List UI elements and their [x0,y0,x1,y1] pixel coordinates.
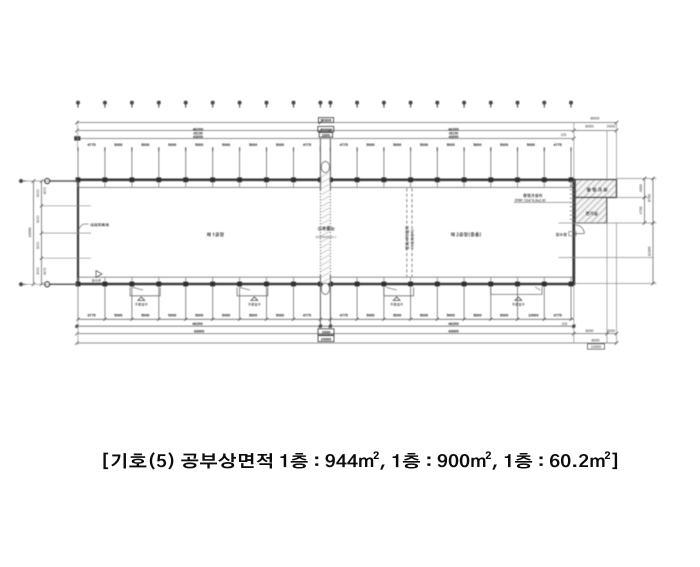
svg-text:5000: 5000 [168,313,176,317]
svg-text:5000: 5000 [195,313,203,317]
svg-text:4700: 4700 [639,206,643,214]
svg-text:2000: 2000 [607,329,615,333]
svg-text:5000: 5000 [366,313,374,317]
svg-text:5000: 5000 [500,313,508,317]
svg-text:8000: 8000 [591,116,601,121]
svg-text:3000: 3000 [36,215,40,223]
svg-text:5000: 5000 [420,313,428,317]
svg-text:5000: 5000 [447,143,455,147]
svg-text:4775: 4775 [554,313,562,317]
svg-text:11300: 11300 [647,247,651,257]
svg-text:3000: 3000 [36,267,40,275]
svg-text:8700: 8700 [647,194,651,202]
svg-text:10000: 10000 [321,337,332,341]
svg-text:43000: 43000 [194,329,205,333]
svg-text:5000: 5000 [141,143,149,147]
svg-text:5000: 5000 [393,313,401,317]
svg-text:5000: 5000 [222,143,230,147]
svg-text:4775: 4775 [303,143,311,147]
svg-text:5000: 5000 [393,143,401,147]
svg-text:5000: 5000 [366,143,374,147]
svg-text:5000: 5000 [473,313,481,317]
svg-text:3000: 3000 [36,242,40,250]
svg-text:5000: 5000 [527,143,535,147]
svg-text:6000: 6000 [586,329,594,333]
svg-text:5000: 5000 [447,313,455,317]
svg-text:43000: 43000 [193,135,203,139]
svg-text:6000: 6000 [585,125,593,129]
svg-text:8000: 8000 [592,338,600,342]
svg-text:5000: 5000 [168,143,176,147]
svg-text:4675: 4675 [43,187,47,195]
svg-text:5000: 5000 [276,143,284,147]
svg-text:225: 225 [562,322,568,326]
svg-text:46200: 46200 [448,322,459,326]
svg-text:2000: 2000 [607,125,615,129]
svg-text:43000: 43000 [449,135,459,139]
svg-text:4675: 4675 [43,268,47,276]
svg-text:5000: 5000 [473,143,481,147]
svg-text:4775: 4775 [340,313,348,317]
svg-text:10000: 10000 [591,345,602,349]
svg-text:10000: 10000 [28,228,32,238]
svg-text:4775: 4775 [340,143,348,147]
svg-text:50300: 50300 [321,118,332,123]
svg-text:4775: 4775 [87,313,95,317]
svg-text:5000: 5000 [195,143,203,147]
svg-text:5000: 5000 [249,143,257,147]
svg-text:5000: 5000 [276,313,284,317]
svg-text:10000: 10000 [528,313,538,317]
svg-text:5000: 5000 [222,313,230,317]
svg-text:46200: 46200 [192,322,203,326]
svg-text:5000: 5000 [500,143,508,147]
svg-text:5000: 5000 [114,313,122,317]
svg-text:225: 225 [561,133,567,137]
svg-text:1000: 1000 [322,331,330,335]
svg-text:EXPANSION J: EXPANSION J [316,235,337,239]
svg-text:3000: 3000 [36,189,40,197]
svg-text:4775: 4775 [87,143,95,147]
svg-text:4000: 4000 [639,184,643,192]
svg-text:5000: 5000 [420,143,428,147]
svg-text:5000: 5000 [141,313,149,317]
svg-text:1000: 1000 [322,133,330,137]
svg-text:5000: 5000 [114,143,122,147]
svg-text:4775: 4775 [303,313,311,317]
svg-text:43000: 43000 [448,329,459,333]
svg-text:5000: 5000 [249,313,257,317]
svg-text:10000: 10000 [320,127,331,132]
svg-text:4775: 4775 [554,143,562,147]
